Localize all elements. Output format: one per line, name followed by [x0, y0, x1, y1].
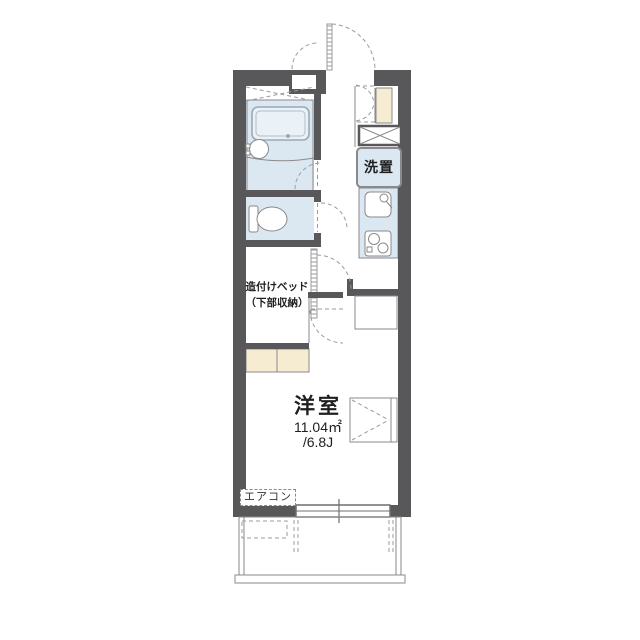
- entrance-door-swing-arc: [332, 24, 375, 70]
- washer-label-text: 洗置: [364, 159, 394, 176]
- bed-label-line2: （下部収納）: [242, 295, 312, 311]
- entrance-door: [292, 24, 375, 70]
- air-conditioner-label: エアコン: [240, 489, 296, 506]
- niche-door-swing-arc: [292, 43, 318, 69]
- floor-plan: 洗置 造付けベッド （下部収納） 洋室 11.04㎡ /6.8J エアコン: [0, 0, 640, 640]
- ac-outdoor-unit: [242, 521, 287, 538]
- balcony: [235, 517, 405, 583]
- aircon-label-text: エアコン: [244, 491, 292, 504]
- gas-stove: [365, 231, 391, 256]
- wall-stub: [308, 292, 343, 298]
- room-name: 洋室: [246, 394, 390, 419]
- kitchen-sink: [365, 192, 392, 217]
- bed-label-line1: 造付けベッド: [242, 279, 312, 295]
- room-area-jo: /6.8J: [246, 434, 390, 451]
- built-in-bed-label: 造付けベッド （下部収納）: [242, 279, 312, 312]
- bathtub: [252, 107, 309, 140]
- toilet: [249, 206, 287, 232]
- sliding-window: [296, 499, 390, 523]
- washing-machine-space-label: 洗置: [356, 147, 402, 188]
- shoe-cabinet: [359, 126, 401, 145]
- bed-steps: [246, 349, 309, 372]
- toilet-door-swing-arc: [321, 203, 347, 229]
- floor-plan-drawing: [0, 0, 640, 640]
- refrigerator-space: [355, 296, 397, 329]
- entrance-floor: [376, 88, 392, 123]
- storage-niche: [292, 75, 316, 89]
